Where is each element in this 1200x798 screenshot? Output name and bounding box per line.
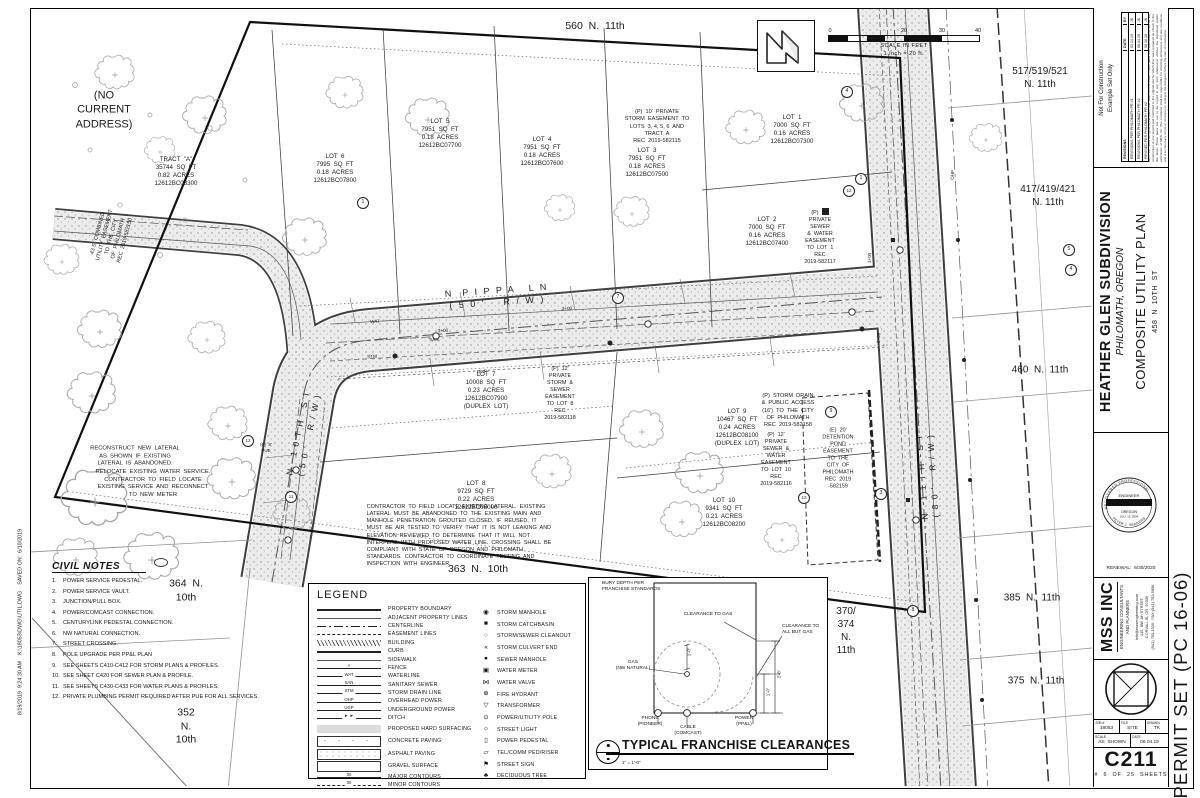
legend-symbol-row: ■STORM CATCHBASIN xyxy=(475,619,581,631)
legend-line-sample-icon xyxy=(317,749,381,759)
civil-note-item: 7.STREET CROSSING. xyxy=(52,641,264,648)
legend-symbol-label: TRANSFORMER xyxy=(497,703,540,709)
legend-symbol-row: ⚑STREET SIGN xyxy=(475,759,581,771)
engineer-stamp: REGISTERED PROFESSIONAL ENGINEER OREGON … xyxy=(1094,433,1168,561)
pue-note: (E) 8' PUE xyxy=(260,442,272,454)
project-title: HEATHER GLEN SUBDIVISION xyxy=(1098,175,1114,428)
addr-352: 352 N. 10th xyxy=(176,707,196,748)
sheet-title: COMPOSITE UTILITY PLAN xyxy=(1133,175,1148,428)
addr-417-419-421: 417/419/421 N. 11th xyxy=(1020,183,1076,209)
legend-row-label: SANITARY SEWER xyxy=(388,682,438,688)
legend-symbol-label: STORM MANHOLE xyxy=(497,610,546,616)
storm-culvert-end-icon: « xyxy=(475,645,497,652)
callout-12a: 12 xyxy=(843,185,855,197)
revision-table: REVISIONS DATE BY REVISIONS PER PHILOMAT… xyxy=(1121,12,1149,162)
transformer-icon: ▽ xyxy=(475,703,497,710)
legend-symbol-label: STREET LIGHT xyxy=(497,727,537,733)
project-address: 458 N 10TH ST xyxy=(1152,175,1159,428)
legend-row-label: DITCH xyxy=(388,715,405,721)
esmt-combined-utility: 43.5' COMBINED UTILITY EASEMENT TO THE C… xyxy=(88,207,136,267)
legend-line-sample-icon xyxy=(317,724,381,734)
legend-row-label: EASEMENT LINES xyxy=(388,631,437,637)
date-label: DATE xyxy=(1132,735,1167,739)
addr-375: 375 N. 11th xyxy=(1008,675,1065,688)
utility-tag-wat: WAT xyxy=(370,319,380,325)
legend-row-label: BUILDING xyxy=(388,640,415,646)
civil-note-item: 8.POLE UPGRADE PER PP&L PLAN xyxy=(52,652,264,659)
legend-row-label: ASPHALT PAVING xyxy=(388,751,435,757)
copyright-disclaimer: MSS, Inc. holds all rights to the plans … xyxy=(1147,14,1169,162)
callout-3: 3 xyxy=(875,488,887,500)
power-pedestal-icon: ▯ xyxy=(475,738,497,745)
franchise-cable-label: CABLE (COMCAST) xyxy=(674,725,701,737)
esmt-storm-lots-3456: (P) 10' PRIVATE STORM EASEMENT TO LOTS 3… xyxy=(625,109,690,145)
civil-note-item: 12.PRIVATE PLUMBING PERMIT REQUIRED AFTE… xyxy=(52,694,264,701)
job-number-label: JOB # xyxy=(1095,721,1118,725)
utility-tag-ugp: UGP xyxy=(477,369,487,375)
legend-symbol-label: STORM/SEWER CLEANOUT xyxy=(497,633,571,639)
legend-title: LEGEND xyxy=(317,589,581,601)
legend-symbol-label: WATER VALVE xyxy=(497,680,536,686)
civil-note-item: 9.SEE SHEETS C410-C412 FOR STORM PLANS &… xyxy=(52,663,264,670)
legend-row-label: ADJACENT PROPERTY LINES xyxy=(388,615,468,621)
deciduous-tree-icon: ♣ xyxy=(475,773,497,780)
sewer-manhole-icon: ● xyxy=(475,656,497,663)
callout-12b: 12 xyxy=(798,492,810,504)
street-n-11th-st: N 1 1 T H S T ( 8 0 ' R / W ) xyxy=(914,432,942,520)
tract-a-label: TRACT "A" 35744 SQ FT 0.82 ACRES 12612BC… xyxy=(154,156,197,188)
title-block: Not For Construction Example Set Only RE… xyxy=(1093,8,1169,787)
tel-comm-ped-riser-icon: ▱ xyxy=(475,750,497,757)
legend-row: ASPHALT PAVING xyxy=(317,747,475,760)
legend-symbol-row: ⋈WATER VALVE xyxy=(475,677,581,689)
permit-set-label: PERMIT SET (PC 16-06) xyxy=(1170,572,1192,798)
firm-logo-icon xyxy=(1094,660,1168,718)
stamp-engineer: ENGINEER xyxy=(1119,493,1140,498)
franchise-dim-high: 2'-6" xyxy=(776,670,781,678)
legend-row-label: MAJOR CONTOURS xyxy=(388,774,441,780)
legend-symbol-row: ◉STORM MANHOLE xyxy=(475,607,581,619)
station-0-00: 0+00 xyxy=(876,333,883,344)
civil-note-item: 4.POWER/COMCAST CONNECTION. xyxy=(52,610,264,617)
legend-row-label: FENCE xyxy=(388,665,407,671)
addr-385: 385 N. 11th xyxy=(1004,592,1061,605)
scale-tick: 0 xyxy=(828,28,831,34)
revision-date-header: DATE xyxy=(1123,25,1127,51)
callout-11: 11 xyxy=(285,491,297,503)
legend-symbol-label: STORM CATCHBASIN xyxy=(497,622,554,628)
lot-9-label: LOT 9 10467 SQ FT 0.24 ACRES 12612BC0810… xyxy=(715,408,759,448)
callout-5: 5 xyxy=(1063,244,1075,256)
legend-row: ► ►DITCH xyxy=(317,714,475,722)
scale-tick: 20 xyxy=(901,28,907,34)
not-for-construction-note: Not For Construction Example Set Only xyxy=(1098,14,1118,162)
stamp-state: OREGON xyxy=(1121,510,1137,514)
legend-row: CONCRETE PAVING xyxy=(317,735,475,748)
addr-370-374: 370/ 374 N. 11th xyxy=(836,605,855,657)
franchise-dim-gas: 1'-0" xyxy=(686,648,691,656)
street-n-10th-st: N 1 0 T H S T ( 5 0 ' R / W ) xyxy=(284,389,324,478)
firm-tagline: ENGINEERING CONSULTANTS AND PLANNERS xyxy=(1119,578,1130,656)
note-relocate-water: RELOCATE EXISTING WATER SERVICE. CONTRAC… xyxy=(96,469,211,499)
civil-note-item: 6.NW NATURAL CONNECTION. xyxy=(52,631,264,638)
lot-1-label: LOT 1 7000 SQ FT 0.16 ACRES 12612BC07300 xyxy=(770,114,813,146)
esmt-detention-pond: (E) 20' DETENTION POND EASEMENT TO THE C… xyxy=(822,427,853,490)
sheet-number: C211 xyxy=(1094,749,1168,771)
addr-560: 560 N. 11th xyxy=(565,20,624,34)
revision-row: REVISIONS PER PHILOMATH PR #103.14.19JK xyxy=(1129,13,1136,161)
scale-tick: 30 xyxy=(939,28,945,34)
legend-row-label: PROPERTY BOUNDARY xyxy=(388,606,452,612)
drawing-date: 06.04.19 xyxy=(1132,740,1167,745)
legend-symbol-label: POWER/UTILITY POLE xyxy=(497,715,557,721)
legend-symbol-row: ☼STREET LIGHT xyxy=(475,724,581,736)
callout-4b: 4 xyxy=(1065,264,1077,276)
fire-hydrant-icon: ⊕ xyxy=(475,691,497,698)
street-light-icon: ☼ xyxy=(475,726,497,733)
legend-symbol-row: ○STORM/SEWER CLEANOUT xyxy=(475,630,581,642)
scale-bar-graphic xyxy=(828,35,980,42)
franchise-detail-title: TYPICAL FRANCHISE CLEARANCES xyxy=(606,738,854,755)
utility-tag-stm: STM xyxy=(367,354,377,360)
water-valve-icon: ⋈ xyxy=(475,680,497,687)
legend-line-sample-icon: ► ► xyxy=(317,713,381,723)
legend-row-label: WATERLINE xyxy=(388,673,420,679)
franchise-bury-note: BURY DEPTH PER FRANCHISE STANDARDS xyxy=(602,581,660,593)
legend-row: GRAVEL SURFACE xyxy=(317,760,475,773)
storm-manhole-icon: ◉ xyxy=(475,610,497,617)
esmt-storm-sewer-lot8: (P) 12' PRIVATE STORM & SEWER EASEMENT T… xyxy=(544,366,575,422)
file-path-note: 8/19/2019 9:24:30 AM K:\18053\DWG\UTIL.D… xyxy=(17,529,24,715)
lot-3-label: LOT 3 7951 SQ FT 0.18 ACRES 12612BC07500 xyxy=(625,147,668,179)
callout-4a: 4 xyxy=(841,86,853,98)
legend-panel: LEGEND PROPERTY BOUNDARYADJACENT PROPERT… xyxy=(308,583,586,779)
civil-note-item: 1.POWER SERVICE PEDESTAL. xyxy=(52,578,264,585)
drawn-by: TK xyxy=(1147,726,1167,731)
franchise-clearance-all-label: CLEARANCE TO ALL BUT GAS xyxy=(782,624,819,636)
franchise-power-label: POWER (PP&L) xyxy=(735,716,753,728)
legend-symbol-label: DECIDUOUS TREE xyxy=(497,773,547,779)
legend-symbol-label: STREET SIGN xyxy=(497,762,534,768)
legend-row: PROPOSED HARD SURFACING xyxy=(317,722,475,735)
civil-note-item: 10.SEE SHEET C420 FOR SEWER PLAN & PROFI… xyxy=(52,673,264,680)
franchise-clearance-gas-label: CLEARANCE TO GAS xyxy=(684,612,733,618)
civil-note-item: 2.POWER SERVICE VAULT. xyxy=(52,589,264,596)
street-sign-icon: ⚑ xyxy=(475,762,497,769)
legend-row-label: MINOR CONTOURS xyxy=(388,782,440,788)
legend-row-label: PROPOSED HARD SURFACING xyxy=(388,726,471,732)
legend-symbol-label: WATER METER xyxy=(497,668,538,674)
scale-bar: 0 20 30 40 SCALE IN FEET 1 inch = 20 ft. xyxy=(828,28,980,57)
callout-8: 8 xyxy=(907,605,919,617)
lot-4-label: LOT 4 7951 SQ FT 0.18 ACRES 12612BC07600 xyxy=(520,136,563,168)
firm-name: MSS INC xyxy=(1100,582,1118,652)
legend-row-label: CURB xyxy=(388,648,404,654)
addr-460: 460 N. 11th xyxy=(1012,364,1069,377)
drawn-label: DRAWN xyxy=(1147,721,1167,725)
legend-symbol-row: ▣WATER METER xyxy=(475,665,581,677)
lot-2-label: LOT 2 7000 SQ FT 0.16 ACRES 12612BC07400 xyxy=(745,216,788,248)
legend-line-sample-icon: 30 xyxy=(317,780,381,790)
station-1-00: 1+00 xyxy=(867,253,874,264)
storm-sewer-cleanout-icon: ○ xyxy=(475,633,497,640)
legend-symbol-row: ▱TEL/COMM PED/RISER xyxy=(475,747,581,759)
legend-row-label: CONCRETE PAVING xyxy=(388,738,441,744)
note-reconstruct-lateral: RECONSTRUCT NEW LATERAL AS SHOWN IF EXIS… xyxy=(90,446,180,469)
callout-7: 7 xyxy=(612,292,624,304)
legend-row-label: SIDEWALK xyxy=(388,657,417,663)
callout-1a: 1 xyxy=(357,197,369,209)
legend-symbol-row: «STORM CULVERT END xyxy=(475,642,581,654)
esmt-storm-drain-public: (P) STORM DRAIN & PUBLIC ACCESS (16') TO… xyxy=(762,393,815,429)
sheet-count: # 6 OF 25 SHEETS xyxy=(1094,772,1168,778)
firm-contact: info@mssengineering.com 215 NW 4th STREE… xyxy=(1134,578,1155,656)
stamp-date: JULY 13, 2004 xyxy=(1120,515,1139,519)
lot-7-label: LOT 7 10008 SQ FT 0.23 ACRES 12612BC0790… xyxy=(464,371,508,411)
utility-tag-ohp: OHP xyxy=(950,170,956,180)
addr-517-519-521: 517/519/521 N. 11th xyxy=(1012,65,1068,91)
legend-symbol-row: ⊕FIRE HYDRANT xyxy=(475,689,581,701)
file-name: SITE xyxy=(1121,726,1144,731)
project-location: PHILOMATH, OREGON xyxy=(1115,175,1126,428)
legend-symbol-label: TEL/COMM PED/RISER xyxy=(497,750,559,756)
legend-row-label: GRAVEL SURFACE xyxy=(388,763,438,769)
street-n-pippa-ln: N P I P P A L N ( 5 0 ' R / W ) xyxy=(444,282,549,313)
lot-10-label: LOT 10 9341 SQ FT 0.21 ACRES 12612BC0820… xyxy=(702,497,745,529)
franchise-dim-low: 1'-0" xyxy=(765,688,770,696)
revision-by-header: BY xyxy=(1123,13,1127,25)
legend-row-label: STORM DRAIN LINE xyxy=(388,690,441,696)
stamp-renewal: RENEWAL: 6/30/2020 xyxy=(1107,566,1156,571)
revision-row: REVISIONS PER PHILOMATH PR #206.04.19JK xyxy=(1136,13,1143,161)
legend-row: 30MINOR CONTOURS xyxy=(317,781,475,789)
legend-row-label: UNDERGROUND POWER xyxy=(388,707,455,713)
civil-note-item: 11.SEE SHEETS C430-C433 FOR WATER PLANS … xyxy=(52,684,264,691)
storm-catchbasin-icon: ■ xyxy=(475,621,497,628)
scale-label: SCALE xyxy=(1095,735,1129,739)
lot-6-label: LOT 6 7995 SQ FT 0.18 ACRES 12612BC07800 xyxy=(313,153,356,185)
franchise-detail-scale: 1" = 1'-0" xyxy=(622,760,641,765)
civil-notes-title: CIVIL NOTES xyxy=(52,561,146,573)
franchise-phone-label: PHONE (PIONEER) xyxy=(638,716,663,728)
station-3-00-b: 3+00 xyxy=(562,306,573,313)
legend-symbol-label: STORM CULVERT END xyxy=(497,645,558,651)
lot-5-label: LOT 5 7951 SQ FT 0.18 ACRES 12612BC07700 xyxy=(418,118,461,150)
no-current-address: (NO CURRENT ADDRESS) xyxy=(76,89,133,132)
water-meter-icon: ▣ xyxy=(475,668,497,675)
scale-caption: SCALE IN FEET xyxy=(828,43,980,49)
callout-9: 9 xyxy=(825,406,837,418)
legend-line-sample-icon xyxy=(317,736,381,746)
keynote-oval-icon xyxy=(154,558,168,567)
revision-header: REVISIONS xyxy=(1123,51,1127,161)
legend-line-list: PROPERTY BOUNDARYADJACENT PROPERTY LINES… xyxy=(317,605,475,789)
legend-line-sample-icon xyxy=(317,761,381,771)
scale-tick: 40 xyxy=(975,28,981,34)
callout-12c: 12 xyxy=(242,435,254,447)
note-contractor-lateral: CONTRACTOR TO FIELD LOCATE EXISTING LATE… xyxy=(367,504,552,568)
utility-tag-san: SAN xyxy=(429,337,439,343)
franchise-gas-label: GAS (NW NATURAL) xyxy=(616,660,651,672)
north-arrow-icon xyxy=(757,20,815,72)
civil-note-item: 3.JUNCTION/PULL BOX. xyxy=(52,599,264,606)
legend-symbol-row: ▯POWER PEDESTAL xyxy=(475,736,581,748)
file-label: FILE xyxy=(1121,721,1144,725)
legend-symbol-row: ▽TRANSFORMER xyxy=(475,701,581,713)
legend-symbol-label: POWER PEDESTAL xyxy=(497,738,549,744)
station-3-00-a: 3+00 xyxy=(438,328,449,335)
legend-symbol-row: ●SEWER MANHOLE xyxy=(475,654,581,666)
legend-symbol-label: SEWER MANHOLE xyxy=(497,657,547,663)
drawing-scale: AS SHOWN xyxy=(1095,740,1129,745)
legend-row-label: CENTERLINE xyxy=(388,623,424,629)
legend-symbol-row: ♣DECIDUOUS TREE xyxy=(475,771,581,783)
civil-note-item: 5.CENTURYLINK PEDESTAL CONNECTION. xyxy=(52,620,264,627)
job-number: 18053 xyxy=(1095,726,1118,731)
scale-sub-caption: 1 inch = 20 ft. xyxy=(828,51,980,57)
callout-1b: 1 xyxy=(855,173,867,185)
esmt-sewer-water-lot1: (P) 12' PRIVATE SEWER & WATER EASEMENT T… xyxy=(804,210,835,266)
legend-symbol-row: ⊙POWER/UTILITY POLE xyxy=(475,712,581,724)
power-utility-pole-icon: ⊙ xyxy=(475,715,497,722)
legend-row-label: OVERHEAD POWER xyxy=(388,698,442,704)
civil-notes: CIVIL NOTES 1.POWER SERVICE PEDESTAL.2.P… xyxy=(52,556,264,705)
legend-symbol-label: FIRE HYDRANT xyxy=(497,692,539,698)
esmt-sewer-water-lot10: (P) 12' PRIVATE SEWER & WATER EASEMENT T… xyxy=(760,432,791,488)
legend-symbol-list: ◉STORM MANHOLE■STORM CATCHBASIN○STORM/SE… xyxy=(475,605,581,789)
